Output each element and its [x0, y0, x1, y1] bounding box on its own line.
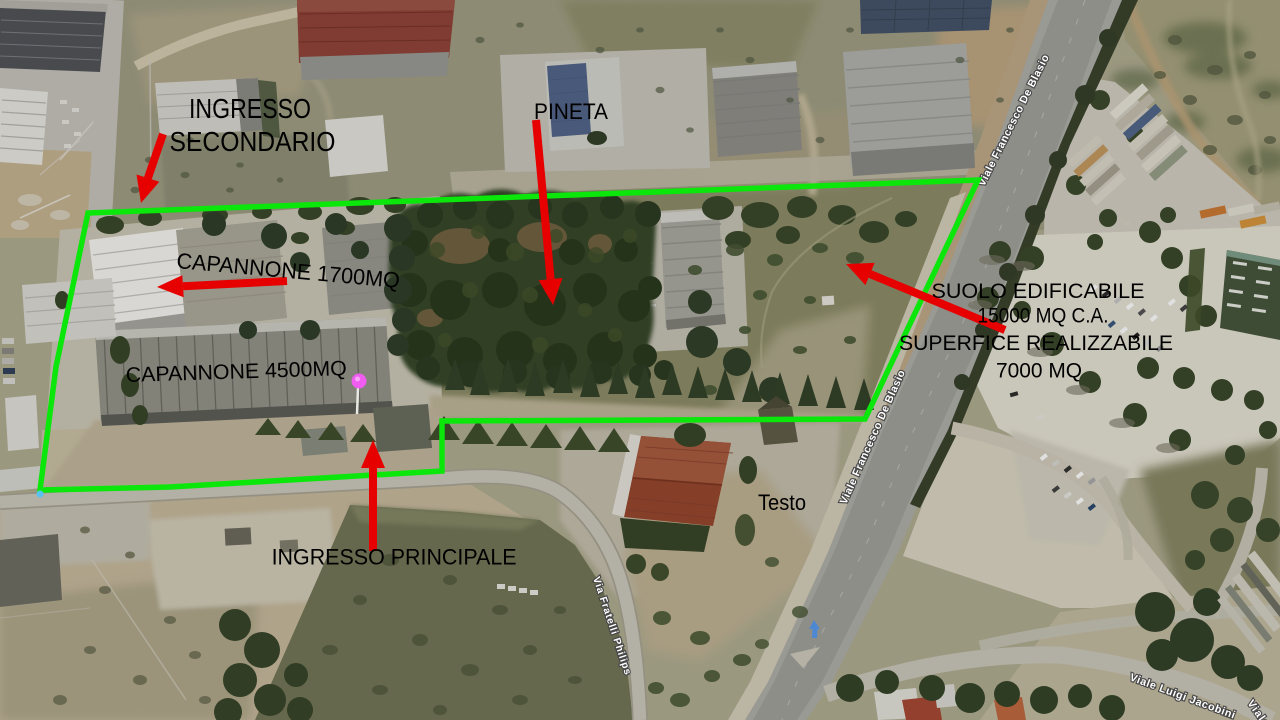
- svg-text:SUPERFICE REALIZZABILE: SUPERFICE REALIZZABILE: [899, 332, 1173, 355]
- svg-text:7000 MQ: 7000 MQ: [996, 360, 1082, 383]
- svg-text:15000 MQ C.A.: 15000 MQ C.A.: [978, 305, 1109, 328]
- svg-text:SUOLO EDIFICABILE: SUOLO EDIFICABILE: [932, 280, 1145, 303]
- svg-text:Testo: Testo: [758, 490, 806, 515]
- svg-text:SECONDARIO: SECONDARIO: [170, 126, 336, 157]
- svg-text:PINETA: PINETA: [534, 99, 608, 124]
- svg-text:INGRESSO PRINCIPALE: INGRESSO PRINCIPALE: [272, 545, 517, 570]
- svg-text:INGRESSO: INGRESSO: [189, 93, 311, 124]
